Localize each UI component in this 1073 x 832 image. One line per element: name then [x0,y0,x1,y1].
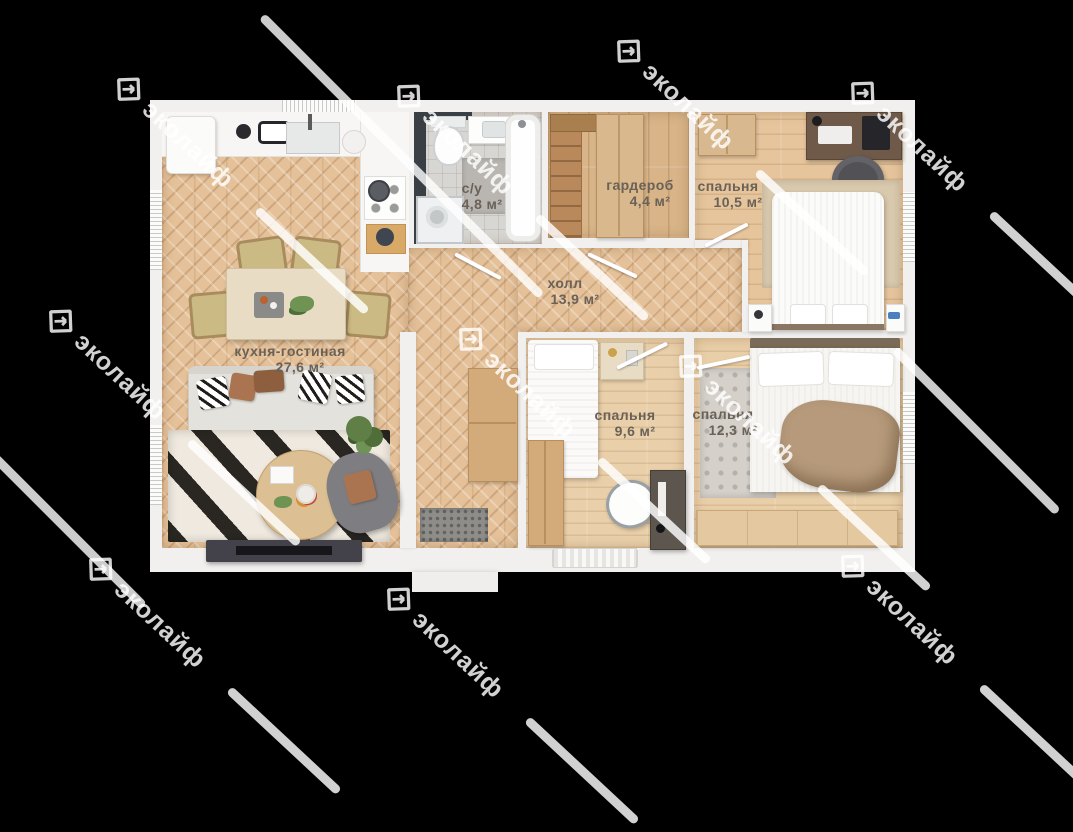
bed-headboard [772,324,884,330]
bed-pillow [790,304,826,326]
frying-pan [368,180,390,202]
wardrobe-cabinet-seam [618,114,620,236]
nightstand-lamp [608,348,617,357]
window-left-kitchen [150,190,162,270]
room-name: кухня-гостиная [234,343,345,359]
fruit [260,296,268,304]
wall-living-hall [400,332,416,548]
pillow-patterned [196,376,231,411]
potted-plant [346,416,372,442]
bathtub-drain [518,120,526,128]
radiator-bedroom-middle [553,548,637,568]
kettle [236,124,251,139]
window-left-living [150,425,162,505]
wall-bedroom-top-hall [695,240,748,248]
bedroom-middle-wardrobe [528,440,564,546]
nightstand-lamp [754,310,763,319]
watermark-tail [226,686,342,795]
watermark-streak [892,346,1061,515]
hall-cabinet-seam [468,422,516,424]
doormat [420,508,488,542]
kitchen-faucet [308,114,312,130]
watermark-streak [0,419,147,609]
watermark-tail [978,683,1073,792]
floor-plan-render: кухня-гостиная 27,6 м² с/у 4,8 м² гардер… [0,0,1073,700]
window-right-bedroom-top [903,192,915,262]
cooking-pot [376,228,394,246]
ecolife-logo-icon [40,300,82,342]
watermark: эколайф [378,578,648,832]
desk-lamp [812,116,822,126]
pillow-patterned [334,373,365,404]
room-name: спальня [595,407,656,423]
ecolife-logo-icon [108,68,150,110]
room-label-kitchen-living: кухня-гостиная 27,6 м² [210,343,370,375]
wardrobe-seam [544,440,546,544]
coffee-table-book [270,466,294,484]
fruit-plate [296,484,316,504]
bed-pillow [534,344,594,370]
bed-pillow [832,304,868,326]
desk-keyboard [818,126,852,144]
window-right-bedroom-right [903,392,915,464]
watermark-tail [988,210,1073,319]
bathroom-sink-basin [482,121,506,138]
bed-pillow [827,351,894,387]
bed-pillow [757,351,824,387]
room-area: 27,6 м² [220,359,380,375]
decor-item [270,302,277,309]
table-plant-sprig [290,296,314,312]
ecolife-logo-icon [608,30,650,72]
entrance-step [412,572,498,592]
serving-tray [254,292,284,318]
kitchen-sink [286,122,340,154]
nightstand-item [888,312,900,319]
watermark-tail [524,716,640,825]
kitchen-bowl [342,130,366,154]
wardrobe-cabinet [596,114,644,238]
room-name: холл [547,275,582,291]
watermark: эколайф [832,545,1073,799]
watermark-text: эколайф [406,605,510,704]
